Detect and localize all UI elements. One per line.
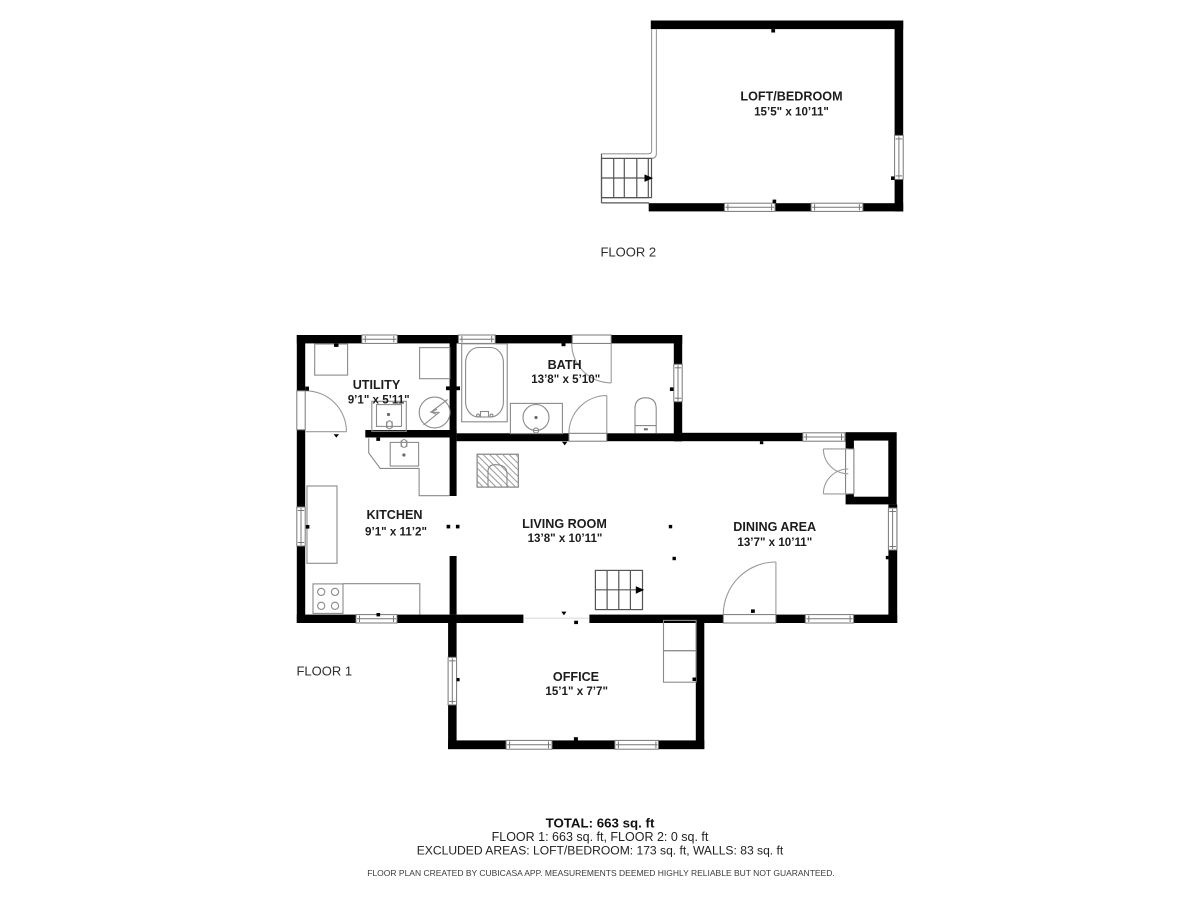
svg-text:FLOOR 1: FLOOR 1	[296, 664, 352, 679]
svg-text:FLOOR 1: 663 sq. ft, FLOOR 2:: FLOOR 1: 663 sq. ft, FLOOR 2: 0 sq. ft	[492, 830, 709, 844]
svg-text:EXCLUDED AREAS: LOFT/BEDROOM:: EXCLUDED AREAS: LOFT/BEDROOM: 173 sq. ft…	[417, 844, 784, 858]
svg-text:15’1" x 7’7": 15’1" x 7’7"	[545, 685, 608, 698]
svg-text:13’8" x 5’10": 13’8" x 5’10"	[531, 373, 600, 386]
svg-text:LIVING ROOM: LIVING ROOM	[522, 517, 607, 531]
svg-text:KITCHEN: KITCHEN	[367, 508, 423, 522]
svg-text:BATH: BATH	[548, 358, 582, 372]
svg-text:OFFICE: OFFICE	[553, 670, 599, 684]
svg-text:FLOOR PLAN CREATED BY CUBICASA: FLOOR PLAN CREATED BY CUBICASA APP. MEAS…	[367, 868, 834, 878]
svg-text:15’5" x 10’11": 15’5" x 10’11"	[754, 106, 829, 119]
svg-text:LOFT/BEDROOM: LOFT/BEDROOM	[740, 90, 842, 104]
svg-text:13’7" x 10’11": 13’7" x 10’11"	[737, 536, 812, 549]
svg-text:FLOOR 2: FLOOR 2	[600, 245, 656, 260]
svg-text:9’1" x 5’11": 9’1" x 5’11"	[348, 394, 410, 407]
svg-text:DINING AREA: DINING AREA	[733, 520, 816, 534]
svg-text:9’1" x 11’2": 9’1" x 11’2"	[365, 526, 427, 539]
svg-text:TOTAL: 663 sq. ft: TOTAL: 663 sq. ft	[546, 816, 655, 831]
svg-text:13’8" x 10’11": 13’8" x 10’11"	[528, 532, 603, 545]
svg-text:UTILITY: UTILITY	[353, 378, 401, 392]
